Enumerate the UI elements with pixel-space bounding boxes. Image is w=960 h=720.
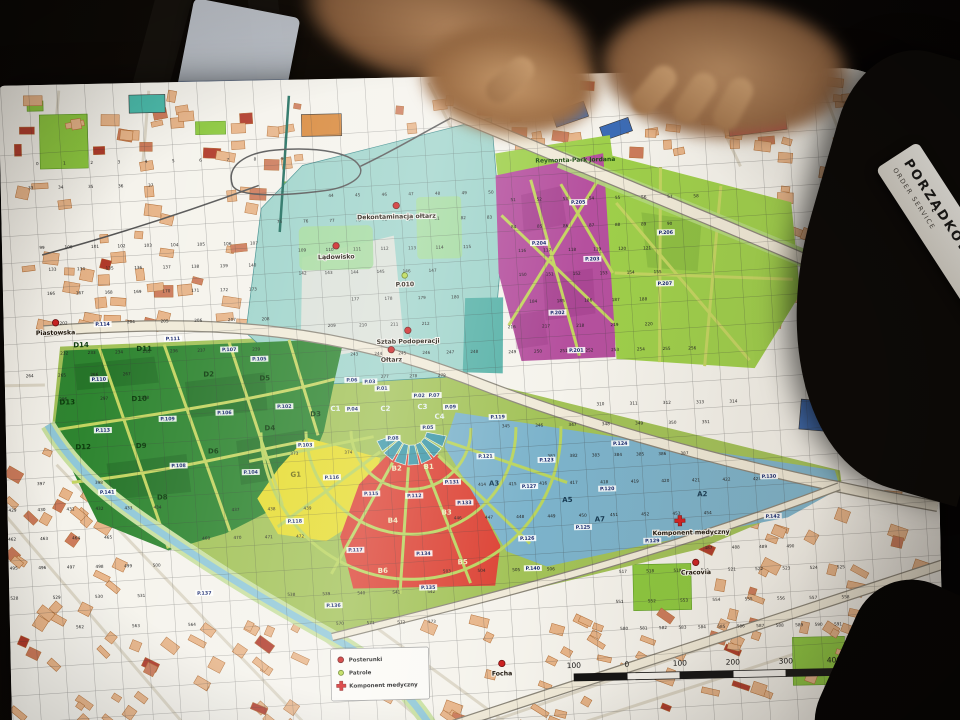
- grid-number: 454: [704, 510, 712, 515]
- grid-number: 101: [91, 244, 99, 249]
- post-label: P.112: [407, 493, 422, 499]
- grid-number: 99: [39, 245, 45, 250]
- grid-number: 45: [355, 192, 361, 197]
- grid-number: 420: [661, 478, 669, 483]
- grid-number: 496: [38, 565, 46, 570]
- grid-number: 7: [226, 157, 229, 162]
- grid-number: 143: [325, 270, 333, 275]
- grid-number: 437: [231, 507, 239, 512]
- grid-number: 172: [220, 287, 228, 292]
- grid-number: 551: [616, 599, 624, 604]
- marker-label: Lądowisko: [318, 253, 355, 261]
- grid-number: 581: [640, 625, 648, 630]
- post-label: P.108: [171, 463, 186, 469]
- post-label: P.130: [762, 474, 777, 480]
- grid-number: 209: [328, 323, 336, 328]
- scale-label: 200: [726, 657, 741, 666]
- post-label: P.103: [298, 442, 313, 448]
- post-label: P.02: [414, 393, 425, 399]
- legend-box: [330, 647, 429, 701]
- zone-label: B6: [378, 567, 389, 575]
- grid-number: 517: [619, 569, 627, 574]
- post-label: P.114: [95, 322, 110, 328]
- scale-label: 100: [673, 659, 688, 668]
- grid-number: 185: [557, 298, 565, 303]
- grid-number: 449: [547, 513, 555, 518]
- grid-number: 147: [429, 268, 437, 273]
- grid-number: 497: [67, 564, 75, 569]
- grid-number: 521: [728, 567, 736, 572]
- grid-number: 76: [303, 218, 309, 223]
- grid-number: 310: [596, 401, 604, 406]
- grid-number: 134: [77, 266, 85, 271]
- building: [71, 118, 82, 130]
- grid-number: 373: [290, 451, 298, 456]
- grid-number: 540: [357, 590, 365, 595]
- building: [101, 115, 119, 126]
- grid-number: 236: [170, 348, 178, 353]
- post-label: P.106: [217, 410, 232, 416]
- grid-number: 75: [277, 219, 283, 224]
- grid-number: 572: [397, 619, 405, 624]
- grid-number: 188: [639, 296, 647, 301]
- zone-label: D14: [73, 341, 89, 349]
- grid-number: 118: [568, 247, 576, 252]
- post-label: P.08: [387, 436, 399, 442]
- building: [178, 111, 194, 122]
- grid-number: 120: [618, 246, 626, 251]
- grid-number: 150: [519, 272, 527, 277]
- grid-number: 587: [756, 623, 764, 628]
- post-label: P.141: [100, 490, 115, 496]
- grid-number: 490: [786, 543, 794, 548]
- building: [135, 268, 145, 281]
- decon-field: [416, 196, 462, 259]
- grid-number: 432: [95, 506, 103, 511]
- grid-number: 177: [351, 296, 359, 301]
- grid-number: 553: [680, 598, 688, 603]
- grid-number: 36: [118, 183, 124, 188]
- grid-number: 252: [585, 347, 593, 352]
- grid-number: 218: [576, 323, 584, 328]
- grid-number: 582: [659, 625, 667, 630]
- post-label: P.120: [600, 486, 615, 492]
- grid-number: 245: [398, 350, 406, 355]
- post-label: P.135: [421, 585, 436, 591]
- patrol-marker-icon: [338, 670, 343, 675]
- grid-number: 208: [262, 316, 270, 321]
- post-label: P.126: [520, 536, 535, 542]
- post-label: P.131: [445, 479, 460, 485]
- grid-number: 447: [485, 515, 493, 520]
- grid-number: 140: [248, 262, 256, 267]
- grid-number: 531: [137, 593, 145, 598]
- grid-number: 416: [539, 480, 547, 485]
- landmark-building: [301, 114, 341, 137]
- grid-number: 589: [795, 622, 803, 627]
- grid-number: 237: [197, 348, 205, 353]
- grid-number: 498: [95, 564, 103, 569]
- grid-number: 184: [529, 299, 537, 304]
- building: [95, 297, 107, 309]
- post-label: P.203: [585, 256, 600, 262]
- grid-number: 580: [620, 626, 628, 631]
- grid-number: 135: [106, 265, 114, 270]
- legend-label: Patrole: [349, 670, 372, 676]
- grid-number: 220: [645, 321, 653, 326]
- grid-number: 471: [265, 534, 273, 539]
- grid-number: 539: [322, 591, 330, 596]
- grid-number: 470: [233, 535, 241, 540]
- grid-number: 52: [537, 197, 543, 202]
- grid-number: 415: [509, 481, 517, 486]
- grid-number: 152: [573, 271, 581, 276]
- post-label: P.109: [160, 416, 175, 422]
- grid-number: 350: [668, 420, 676, 425]
- grid-number: 145: [377, 269, 385, 274]
- grid-number: 53: [563, 196, 569, 201]
- grid-number: 50: [488, 190, 494, 195]
- post-marker-icon: [338, 657, 344, 663]
- grid-number: 465: [104, 535, 112, 540]
- post-label: P.01: [376, 386, 387, 392]
- building: [32, 183, 49, 189]
- building: [120, 130, 133, 141]
- building: [64, 268, 74, 276]
- grid-number: 173: [249, 286, 257, 291]
- grid-number: 279: [438, 373, 446, 378]
- grid-number: 429: [8, 508, 16, 513]
- photo-of-event-map: 0123456789333435363744454647484950515253…: [0, 0, 960, 720]
- scale-bar-segment: [680, 671, 733, 679]
- building: [730, 139, 740, 148]
- grid-number: 528: [10, 596, 18, 601]
- grid-number: 116: [518, 248, 526, 253]
- building: [147, 282, 164, 292]
- zone-label: D10: [131, 395, 147, 403]
- grid-number: 297: [100, 396, 108, 401]
- post-label: P.136: [326, 603, 341, 609]
- post-label: P.137: [197, 591, 212, 597]
- post-label: P.118: [288, 519, 303, 525]
- grid-number: 522: [755, 566, 763, 571]
- grid-number: 2: [90, 160, 93, 165]
- grid-number: 210: [359, 322, 367, 327]
- grid-number: 586: [737, 623, 745, 628]
- grid-number: 570: [336, 621, 344, 626]
- post-marker-icon: [388, 346, 395, 353]
- grid-number: 251: [560, 348, 568, 353]
- grid-number: 398: [95, 480, 103, 485]
- post-label: P.129: [645, 538, 660, 544]
- grid-number: 249: [508, 349, 516, 354]
- grid-number: 83: [487, 215, 493, 220]
- grid-number: 139: [220, 263, 228, 268]
- grid-number: 349: [635, 420, 643, 425]
- grid-number: 205: [161, 318, 169, 323]
- grid-number: 100: [64, 244, 72, 249]
- grid-number: 385: [636, 451, 644, 456]
- grid-number: 247: [446, 349, 454, 354]
- grid-number: 243: [350, 351, 358, 356]
- building: [239, 113, 252, 125]
- post-label: P.201: [569, 348, 584, 354]
- grid-number: 591: [834, 621, 842, 626]
- legend-label: Posterunki: [349, 657, 383, 664]
- grid-number: 571: [367, 620, 375, 625]
- grid-number: 115: [463, 244, 471, 249]
- grid-number: 88: [615, 222, 621, 227]
- grid-number: 167: [76, 290, 84, 295]
- patrol-marker-icon: [402, 273, 408, 279]
- zone-label: D8: [157, 493, 168, 501]
- building: [167, 90, 177, 102]
- grid-number: 111: [353, 246, 361, 251]
- grid-number: 44: [328, 193, 334, 198]
- building: [231, 141, 245, 150]
- grid-number: 438: [267, 506, 275, 511]
- grid-number: 446: [454, 515, 462, 520]
- grid-number: 504: [477, 568, 485, 573]
- grid-number: 351: [702, 419, 710, 424]
- building: [58, 199, 72, 210]
- grid-number: 421: [692, 477, 700, 482]
- building: [781, 186, 790, 192]
- grid-number: 500: [153, 563, 161, 568]
- grid-number: 1: [63, 160, 66, 165]
- grid-number: 239: [252, 346, 260, 351]
- post-label: P.204: [532, 240, 547, 246]
- grid-number: 529: [53, 595, 61, 600]
- grid-number: 154: [627, 270, 635, 275]
- grid-number: 58: [693, 193, 699, 198]
- grid-number: 564: [188, 622, 196, 627]
- grid-number: 82: [461, 215, 467, 220]
- grid-number: 552: [648, 598, 656, 603]
- grid-number: 6: [199, 158, 202, 163]
- grid-number: 563: [132, 623, 140, 628]
- grid-number: 55: [615, 195, 621, 200]
- post-label: P.05: [422, 425, 433, 431]
- grid-number: 558: [841, 594, 849, 599]
- grid-number: 107: [250, 240, 258, 245]
- grid-number: 541: [392, 590, 400, 595]
- scale-bar-segment: [733, 670, 786, 678]
- grid-number: 216: [508, 324, 516, 329]
- building: [293, 103, 301, 109]
- post-label: P.102: [277, 404, 292, 410]
- grid-number: 51: [510, 197, 516, 202]
- grid-number: 346: [535, 423, 543, 428]
- grid-number: 584: [698, 624, 706, 629]
- building: [231, 123, 246, 133]
- grid-number: 384: [614, 452, 622, 457]
- post-label: P.105: [252, 356, 267, 362]
- building: [407, 123, 417, 134]
- grid-number: 142: [299, 270, 307, 275]
- post-marker-icon: [405, 327, 412, 334]
- grid-number: 414: [478, 482, 486, 487]
- post-label: P.107: [222, 347, 237, 353]
- grid-number: 448: [516, 514, 524, 519]
- building: [230, 243, 247, 252]
- grid-number: 113: [408, 245, 416, 250]
- grid-number: 588: [776, 623, 784, 628]
- grid-number: 345: [502, 423, 510, 428]
- post-label: P.03: [364, 379, 375, 385]
- post-label: P.111: [166, 336, 181, 342]
- post-label: P.205: [571, 200, 586, 206]
- zone-label: A2: [697, 490, 708, 498]
- grid-number: 106: [223, 241, 231, 246]
- grid-number: 382: [570, 453, 578, 458]
- grid-number: 244: [374, 351, 382, 356]
- grid-number: 562: [76, 624, 84, 629]
- grid-number: 256: [688, 345, 696, 350]
- grid-number: 463: [40, 536, 48, 541]
- grid-number: 524: [810, 565, 818, 570]
- post-marker-icon: [333, 243, 340, 250]
- zone-label: D9: [136, 442, 147, 450]
- grid-number: 114: [436, 245, 444, 250]
- grid-number: 170: [162, 288, 170, 293]
- grid-number: 499: [124, 563, 132, 568]
- post-label: P.121: [478, 454, 493, 460]
- grid-number: 204: [127, 319, 135, 324]
- zone-label: C4: [435, 413, 445, 421]
- zone-label: A3: [489, 479, 500, 487]
- grid-number: 314: [729, 398, 737, 403]
- post-label: P.133: [457, 500, 472, 506]
- marker-label: P.010: [395, 281, 415, 288]
- grid-number: 530: [95, 594, 103, 599]
- grid-number: 54: [589, 195, 595, 200]
- grid-number: 383: [592, 452, 600, 457]
- grid-number: 136: [134, 265, 142, 270]
- post-label: P.116: [325, 475, 340, 481]
- post-label: P.123: [539, 457, 554, 463]
- grid-number: 555: [745, 596, 753, 601]
- post-label: P.125: [576, 525, 591, 531]
- grid-number: 431: [66, 506, 74, 511]
- zone-label: C3: [417, 403, 427, 411]
- scale-bar-segment: [627, 672, 680, 680]
- grid-number: 255: [662, 346, 670, 351]
- grid-number: 171: [191, 288, 199, 293]
- grid-number: 121: [643, 245, 651, 250]
- grid-number: 103: [144, 243, 152, 248]
- grid-number: 489: [759, 544, 767, 549]
- grid-number: 422: [722, 477, 730, 482]
- zone-label: A7: [595, 515, 606, 523]
- grid-number: 207: [228, 317, 236, 322]
- post-label: P.207: [658, 281, 673, 287]
- post-label: P.117: [348, 547, 363, 553]
- post-label: P.04: [347, 406, 359, 412]
- building: [645, 129, 656, 137]
- grid-number: 248: [470, 349, 478, 354]
- grid-number: 3: [118, 159, 121, 164]
- grid-number: 462: [8, 537, 16, 542]
- grid-number: 180: [451, 294, 459, 299]
- grid-number: 374: [344, 450, 352, 455]
- landmark-building: [129, 94, 165, 113]
- grid-number: 186: [584, 297, 592, 302]
- grid-number: 311: [630, 401, 638, 406]
- grid-number: 77: [329, 218, 335, 223]
- grid-number: 397: [37, 481, 45, 486]
- marker-label: Piastowska: [36, 329, 76, 337]
- grid-number: 583: [678, 625, 686, 630]
- grid-number: 277: [381, 374, 389, 379]
- grid-number: 253: [611, 347, 619, 352]
- post-marker-icon: [52, 319, 59, 326]
- post-label: P.206: [659, 230, 674, 236]
- grid-number: 49: [462, 190, 468, 195]
- grid-number: 153: [600, 270, 608, 275]
- grid-number: 151: [546, 271, 554, 276]
- grid-number: 495: [10, 566, 18, 571]
- building: [754, 140, 771, 152]
- zone-label: A5: [562, 496, 573, 504]
- grid-number: 265: [58, 373, 66, 378]
- grid-number: 469: [202, 536, 210, 541]
- zone-label: D12: [75, 443, 91, 451]
- grid-number: 5: [172, 158, 175, 163]
- building: [714, 579, 726, 592]
- grid-number: 110: [326, 247, 334, 252]
- marker-label: Focha: [492, 670, 513, 677]
- zone-label: B5: [458, 558, 469, 566]
- grid-number: 178: [384, 296, 392, 301]
- grid-number: 464: [72, 535, 80, 540]
- building: [663, 140, 671, 150]
- grid-number: 386: [658, 451, 666, 456]
- zone-label: D3: [310, 410, 321, 418]
- marker-label: Cracovia: [681, 569, 711, 577]
- grid-number: 433: [124, 505, 132, 510]
- post-label: P.124: [613, 441, 628, 447]
- post-label: P.06: [346, 377, 358, 383]
- grid-number: 487: [704, 545, 712, 550]
- zone-label: D5: [259, 374, 270, 382]
- grid-number: 264: [26, 373, 34, 378]
- grid-number: 506: [547, 566, 555, 571]
- post-label: P.127: [522, 484, 537, 490]
- grid-number: 155: [654, 269, 662, 274]
- grid-number: 233: [88, 350, 96, 355]
- zone-label: B1: [424, 463, 435, 471]
- scale-bar-segment: [574, 673, 627, 681]
- post-label: P.113: [96, 428, 111, 434]
- grid-number: 206: [194, 318, 202, 323]
- grid-number: 219: [610, 322, 618, 327]
- grid-number: 439: [303, 505, 311, 510]
- grid-number: 37: [148, 183, 154, 188]
- zone-label: G1: [290, 471, 301, 479]
- grid-number: 387: [680, 450, 688, 455]
- grid-number: 202: [60, 320, 68, 325]
- post-label: P.115: [364, 491, 379, 497]
- building: [891, 536, 904, 549]
- building: [23, 96, 42, 106]
- building: [245, 203, 259, 215]
- paper-map-sheet: 0123456789333435363744454647484950515253…: [0, 66, 944, 720]
- grid-number: 518: [646, 568, 654, 573]
- grid-number: 525: [837, 564, 845, 569]
- grid-number: 451: [610, 512, 618, 517]
- grid-number: 166: [47, 291, 55, 296]
